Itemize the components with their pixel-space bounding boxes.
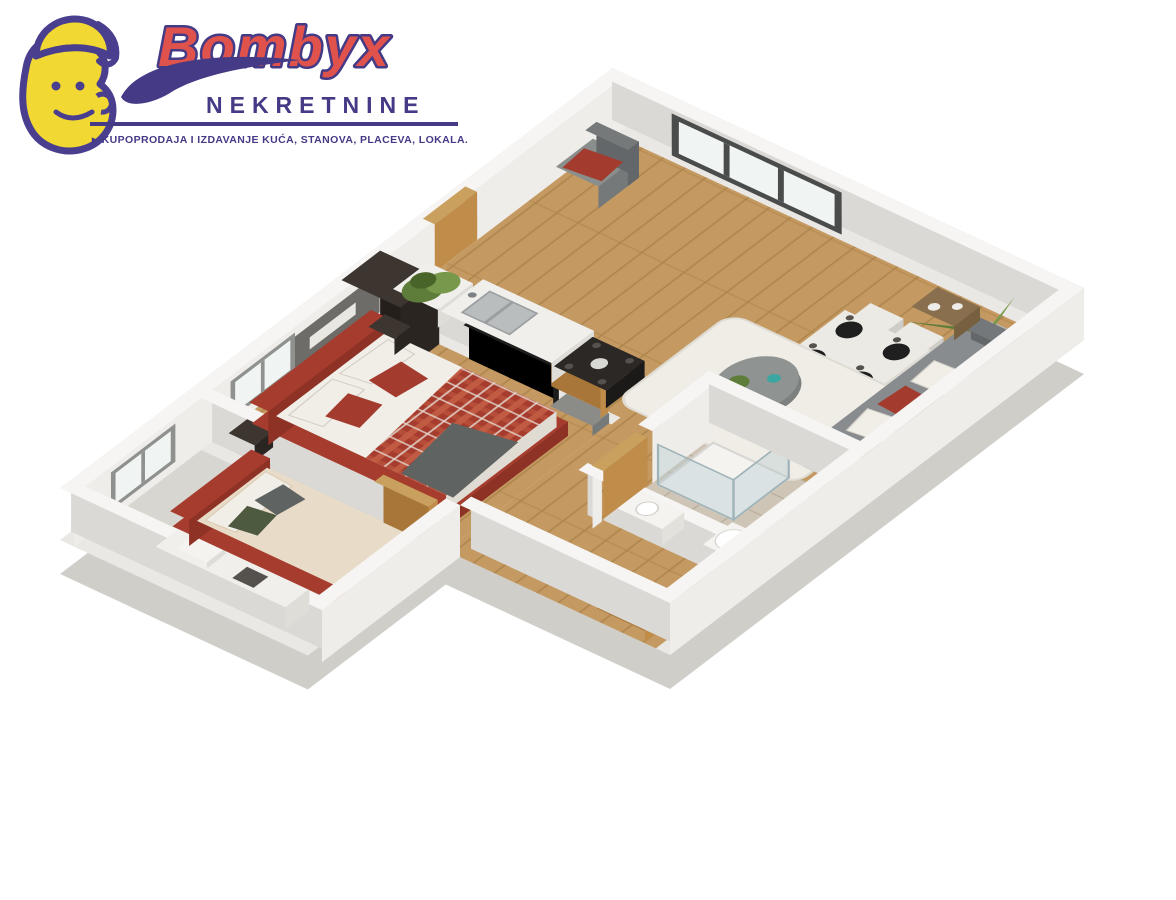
tagline-arrow-icon: ▸ [91,134,98,146]
logo-divider [90,122,458,126]
agency-logo: Bombyx NEKRETNINE ▸KUPOPRODAJA I IZDAVAN… [0,0,470,165]
apartment-model [0,68,1154,794]
brand-subtitle: NEKRETNINE [206,92,426,118]
mascot-eye-right [76,82,85,91]
mascot-eye-left [52,82,61,91]
real-estate-floorplan-image: { "logo": { "brand": "Bombyx", "subtitle… [0,0,1176,900]
mascot-icon [23,19,117,151]
logo-tagline: ▸KUPOPRODAJA I IZDAVANJE KUĆA, STANOVA, … [91,133,468,146]
